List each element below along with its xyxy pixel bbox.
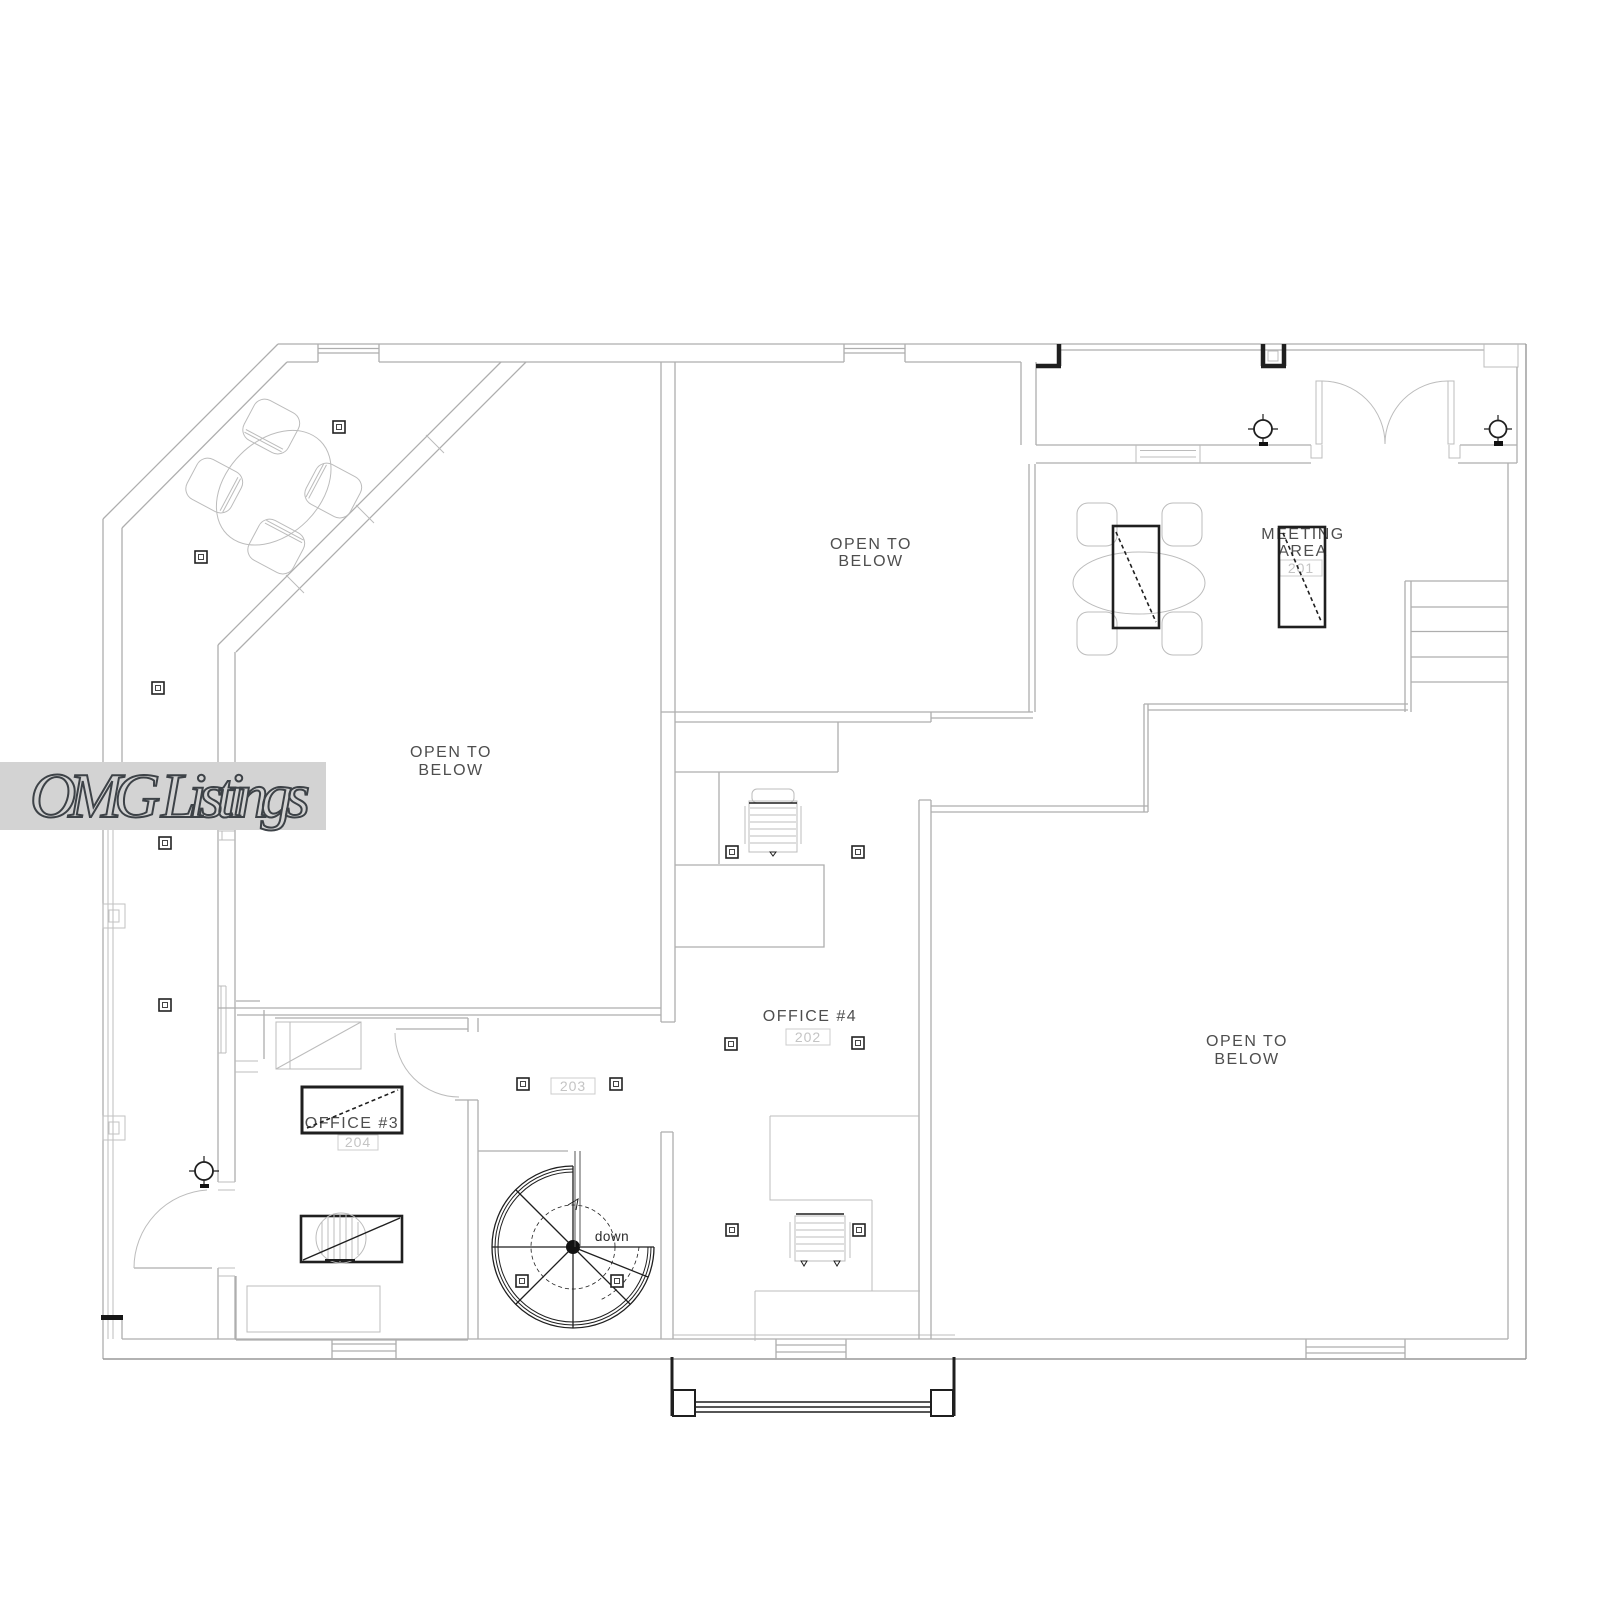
svg-text:BELOW: BELOW (418, 762, 483, 779)
svg-text:BELOW: BELOW (1214, 1051, 1279, 1068)
svg-text:BELOW: BELOW (838, 553, 903, 570)
svg-text:OMG Listings: OMG Listings (30, 760, 310, 831)
svg-text:AREA: AREA (1278, 543, 1328, 560)
svg-text:OPEN TO: OPEN TO (830, 536, 912, 553)
svg-text:MEETING: MEETING (1261, 526, 1344, 543)
svg-text:204: 204 (345, 1134, 371, 1150)
svg-text:202: 202 (795, 1029, 821, 1045)
svg-text:OFFICE #4: OFFICE #4 (763, 1008, 857, 1025)
svg-text:OFFICE #3: OFFICE #3 (305, 1115, 399, 1132)
svg-text:OPEN TO: OPEN TO (1206, 1033, 1288, 1050)
svg-text:203: 203 (560, 1078, 586, 1094)
svg-text:OPEN TO: OPEN TO (410, 744, 492, 761)
